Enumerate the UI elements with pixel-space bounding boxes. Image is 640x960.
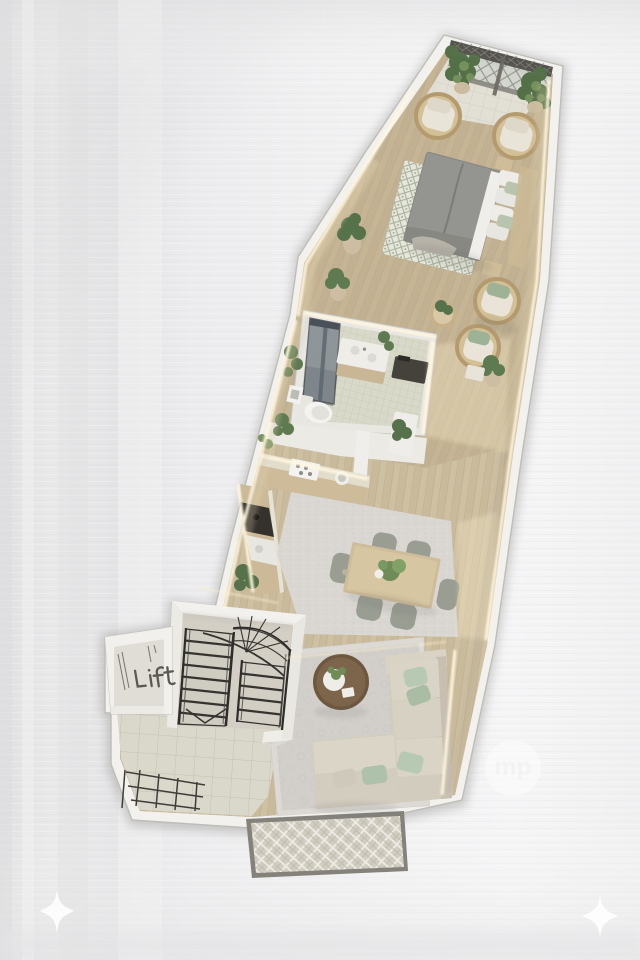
svg-text:mp: mp	[494, 753, 532, 781]
